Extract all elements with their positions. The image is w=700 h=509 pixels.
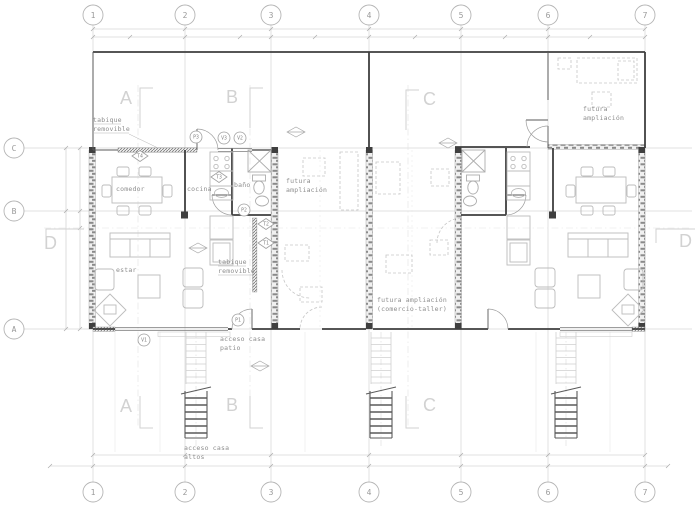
- note-tabique-1-line2: removible: [93, 125, 130, 133]
- toilet: [468, 181, 478, 194]
- section-b-bottom: B: [226, 395, 238, 415]
- future-bed: [376, 162, 400, 194]
- note-futura-topright-line2: ampliación: [583, 114, 624, 122]
- axis-col-1-bottom: 1: [91, 488, 96, 497]
- tag-v2: V2: [237, 136, 243, 142]
- removable-partition-vertical: [253, 218, 257, 292]
- room-label-bano: baño: [234, 181, 250, 189]
- stove: [210, 152, 233, 171]
- section-d-left: D: [44, 233, 57, 253]
- room-label-estar: estar: [116, 266, 137, 274]
- tag-t2: T2: [263, 222, 269, 228]
- axis-col-1-top: 1: [91, 11, 96, 20]
- section-a-bottom: A: [120, 396, 132, 416]
- tag-t1: T1: [263, 241, 269, 247]
- axis-bubbles: 1 2 3 4 5 6 7 1 2 3 4 5 6 7 C B A: [4, 5, 655, 502]
- armchair: [95, 269, 114, 290]
- note-acceso-patio-line2: patio: [220, 344, 241, 352]
- future-bed: [577, 58, 637, 83]
- bathroom-fixtures-right: [462, 150, 485, 206]
- axis-col-2-top: 2: [183, 11, 188, 20]
- tag-v3: V3: [221, 136, 227, 142]
- tag-p2: P2: [241, 208, 247, 214]
- axis-col-2-bottom: 2: [183, 488, 188, 497]
- axis-col-3-top: 3: [269, 11, 274, 20]
- future-bed: [340, 152, 358, 210]
- washbasin: [464, 196, 477, 206]
- note-tabique-2-line1: tabique: [218, 258, 247, 266]
- note-comercio-line1: futura ampliación: [377, 296, 447, 304]
- tag-p1: P1: [235, 318, 241, 324]
- section-c-top: C: [423, 89, 436, 109]
- stove: [507, 152, 530, 171]
- floor-plan-drawing: 1 2 3 4 5 6 7 1 2 3 4 5 6 7 C B A P3 V3 …: [0, 0, 700, 509]
- section-d-right: D: [679, 231, 692, 251]
- tag-p3: P3: [193, 135, 199, 141]
- axis-col-6-top: 6: [546, 11, 551, 20]
- tag-t4: T4: [137, 154, 143, 160]
- furniture-left-house: [94, 150, 271, 326]
- note-tabique-1-line1: tabique: [93, 116, 122, 124]
- washbasin: [256, 196, 269, 206]
- section-a-top: A: [120, 88, 132, 108]
- axis-col-3-bottom: 3: [269, 488, 274, 497]
- axis-row-a: A: [12, 325, 17, 334]
- bathroom-fixtures-left: [248, 150, 271, 206]
- floor-plan-canvas: 1 2 3 4 5 6 7 1 2 3 4 5 6 7 C B A P3 V3 …: [0, 0, 700, 509]
- axis-col-4-bottom: 4: [367, 488, 372, 497]
- dining-table: [576, 177, 626, 203]
- axis-col-7-top: 7: [643, 11, 648, 20]
- axis-row-b: B: [12, 207, 17, 216]
- notes: tabique removible tabique removible futu…: [93, 105, 624, 461]
- note-comercio-line2: (comercio-taller): [377, 305, 447, 313]
- note-futura-center-line2: ampliación: [286, 186, 327, 194]
- axis-row-c: C: [12, 144, 17, 153]
- tag-t3: T3: [216, 175, 222, 181]
- note-acceso-patio-line1: acceso casa: [220, 335, 265, 343]
- section-b-top: B: [226, 87, 238, 107]
- low-table: [138, 275, 160, 298]
- sofa: [110, 233, 170, 257]
- note-futura-center-line1: futura: [286, 177, 311, 185]
- note-acceso-altos-line2: altos: [184, 453, 205, 461]
- hatched-walls: [89, 145, 645, 332]
- room-label-cocina: cocina: [187, 185, 212, 193]
- axis-col-5-top: 5: [459, 11, 464, 20]
- axis-col-7-bottom: 7: [643, 488, 648, 497]
- low-table: [578, 275, 600, 298]
- axis-col-4-top: 4: [367, 11, 372, 20]
- window-sill-right: [560, 332, 632, 337]
- section-c-bottom: C: [423, 395, 436, 415]
- axis-col-5-bottom: 5: [459, 488, 464, 497]
- room-label-comedor: comedor: [116, 185, 145, 193]
- desk-diamond: [94, 294, 126, 326]
- note-tabique-2-line2: removible: [218, 267, 255, 275]
- stairs: [181, 332, 581, 446]
- tag-v1: V1: [141, 338, 147, 344]
- toilet: [254, 181, 264, 194]
- axis-col-6-bottom: 6: [546, 488, 551, 497]
- note-acceso-altos-line1: acceso casa: [184, 444, 229, 452]
- note-futura-topright-line1: futura: [583, 105, 608, 113]
- sofa: [568, 233, 628, 257]
